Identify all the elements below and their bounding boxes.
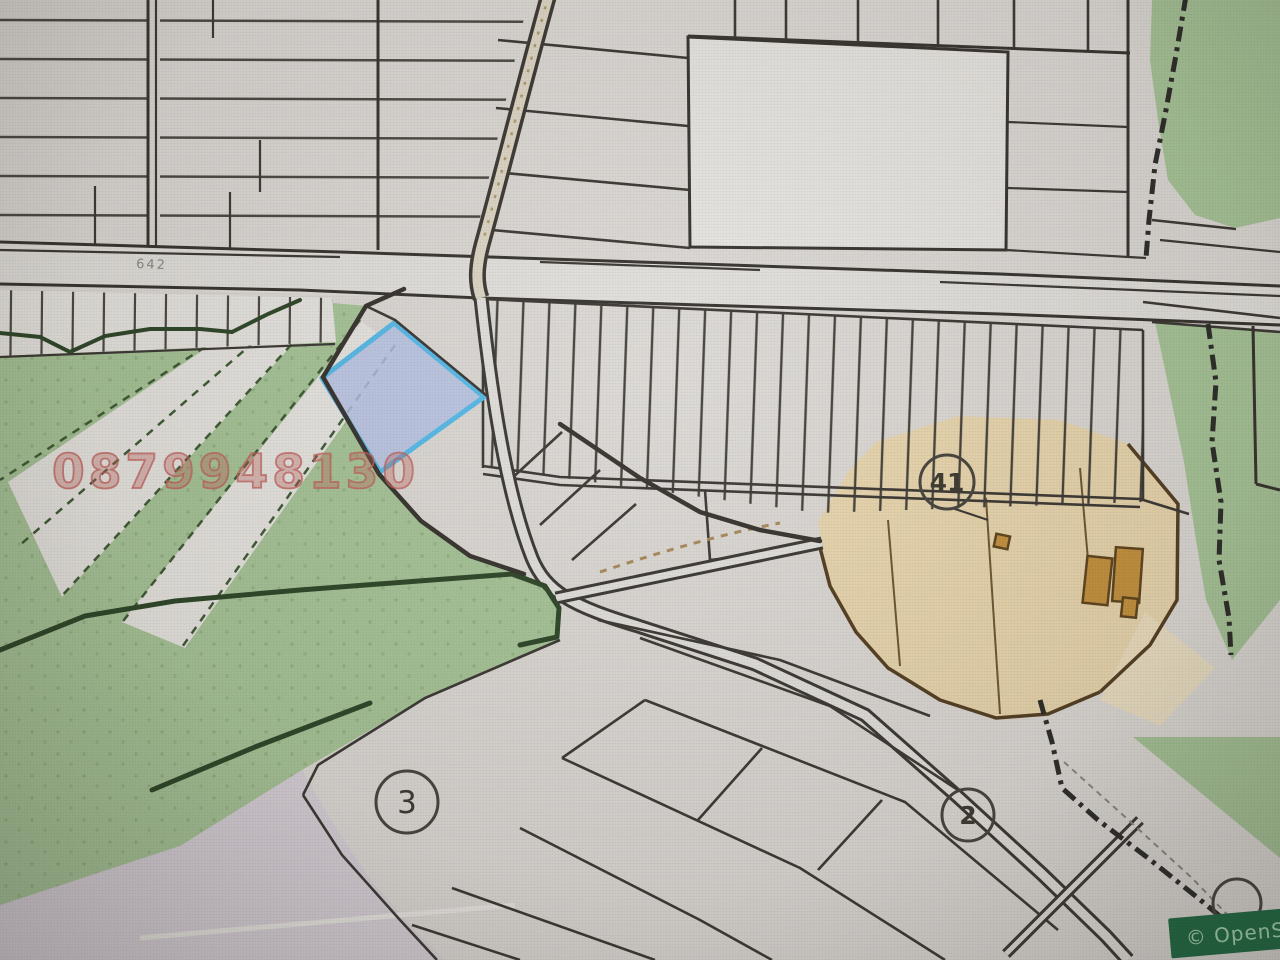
road-number-label: 642 [136,257,167,273]
cadastral-map[interactable]: 642 [0,0,1280,960]
strip-band-right [483,297,1189,520]
svg-text:3: 3 [397,785,417,821]
cadastral-map-photo: 642 [0,0,1280,960]
svg-text:2: 2 [959,801,976,830]
building [1112,547,1143,603]
building [994,534,1010,550]
svg-text:41: 41 [930,468,965,497]
parcel-grid-top-left [0,0,528,250]
phone-watermark: 0879948130 [52,445,419,500]
building [1121,597,1138,617]
building [1083,556,1113,605]
strip-band-left [0,290,336,357]
